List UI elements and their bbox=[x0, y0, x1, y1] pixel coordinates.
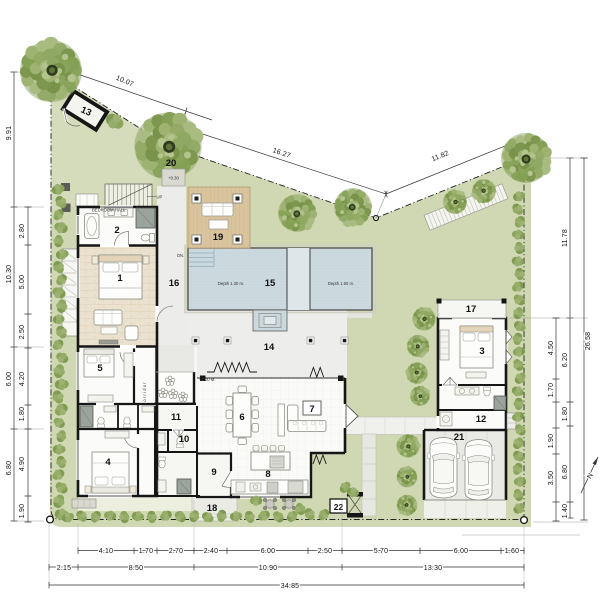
svg-text:1.90: 1.90 bbox=[548, 434, 555, 448]
svg-text:4.50: 4.50 bbox=[548, 341, 555, 355]
svg-text:6.80: 6.80 bbox=[6, 461, 13, 475]
svg-text:8: 8 bbox=[265, 469, 270, 480]
svg-text:34.85: 34.85 bbox=[281, 583, 300, 590]
svg-text:1.80: 1.80 bbox=[562, 407, 569, 421]
svg-text:16.27: 16.27 bbox=[272, 147, 292, 160]
svg-text:UP: UP bbox=[157, 195, 163, 200]
svg-text:5.70: 5.70 bbox=[374, 548, 388, 555]
svg-text:9: 9 bbox=[211, 467, 216, 478]
svg-text:10.07: 10.07 bbox=[115, 75, 135, 89]
svg-text:17: 17 bbox=[466, 304, 477, 315]
svg-text:10.90: 10.90 bbox=[259, 565, 278, 572]
svg-text:7: 7 bbox=[309, 404, 314, 415]
svg-text:16: 16 bbox=[169, 278, 180, 289]
svg-text:18: 18 bbox=[207, 503, 218, 514]
svg-text:6.00: 6.00 bbox=[6, 372, 13, 386]
svg-text:10.30: 10.30 bbox=[6, 265, 13, 284]
svg-text:9.91: 9.91 bbox=[6, 126, 13, 140]
svg-text:DN.: DN. bbox=[177, 253, 184, 258]
svg-text:26.58: 26.58 bbox=[585, 332, 592, 351]
svg-text:2.80: 2.80 bbox=[19, 224, 26, 238]
svg-text:3.50: 3.50 bbox=[548, 471, 555, 485]
svg-text:10: 10 bbox=[179, 434, 190, 445]
svg-text:1.70: 1.70 bbox=[139, 548, 153, 555]
svg-text:11: 11 bbox=[171, 412, 182, 423]
svg-text:1: 1 bbox=[117, 273, 123, 284]
svg-text:1.60: 1.60 bbox=[505, 548, 519, 555]
svg-text:1.70: 1.70 bbox=[548, 383, 555, 397]
svg-text:12: 12 bbox=[476, 414, 487, 425]
svg-text:20: 20 bbox=[166, 158, 177, 169]
svg-text:6.20: 6.20 bbox=[562, 353, 569, 367]
svg-text:2.70: 2.70 bbox=[169, 548, 183, 555]
svg-text:+0.30: +0.30 bbox=[168, 176, 179, 181]
svg-text:4.20: 4.20 bbox=[19, 372, 26, 386]
svg-text:19: 19 bbox=[213, 232, 224, 243]
svg-text:11.82: 11.82 bbox=[431, 150, 450, 163]
svg-text:2.40: 2.40 bbox=[204, 548, 218, 555]
svg-text:Depth 1.60 m.: Depth 1.60 m. bbox=[328, 281, 354, 286]
svg-text:3: 3 bbox=[479, 346, 484, 357]
svg-text:4.90: 4.90 bbox=[19, 457, 26, 471]
svg-text:6.80: 6.80 bbox=[562, 465, 569, 479]
svg-text:1.40: 1.40 bbox=[562, 504, 569, 518]
svg-text:13.30: 13.30 bbox=[424, 565, 443, 572]
svg-text:6.00: 6.00 bbox=[261, 548, 275, 555]
svg-text:2.50: 2.50 bbox=[318, 548, 332, 555]
svg-text:1.90: 1.90 bbox=[19, 504, 26, 518]
svg-text:14: 14 bbox=[264, 342, 275, 353]
svg-text:5.00: 5.00 bbox=[19, 275, 26, 289]
svg-text:8.50: 8.50 bbox=[129, 565, 143, 572]
svg-text:6.00: 6.00 bbox=[454, 548, 468, 555]
svg-text:1.80: 1.80 bbox=[19, 407, 26, 421]
svg-text:21: 21 bbox=[454, 432, 465, 443]
svg-text:+0.00 M.: +0.00 M. bbox=[199, 377, 215, 382]
svg-text:Depth 1.30 m.: Depth 1.30 m. bbox=[218, 281, 244, 286]
svg-text:2.50: 2.50 bbox=[19, 325, 26, 339]
svg-text:corridor: corridor bbox=[142, 381, 147, 405]
svg-text:11.78: 11.78 bbox=[562, 229, 569, 247]
svg-text:2: 2 bbox=[114, 225, 119, 236]
svg-text:15: 15 bbox=[265, 278, 276, 289]
svg-text:5: 5 bbox=[97, 363, 103, 374]
svg-text:4: 4 bbox=[105, 457, 111, 468]
svg-text:4.10: 4.10 bbox=[99, 548, 113, 555]
svg-text:2.15: 2.15 bbox=[57, 565, 71, 572]
svg-text:6: 6 bbox=[239, 412, 244, 423]
svg-text:BEDROOM HALL: BEDROOM HALL bbox=[92, 208, 126, 213]
